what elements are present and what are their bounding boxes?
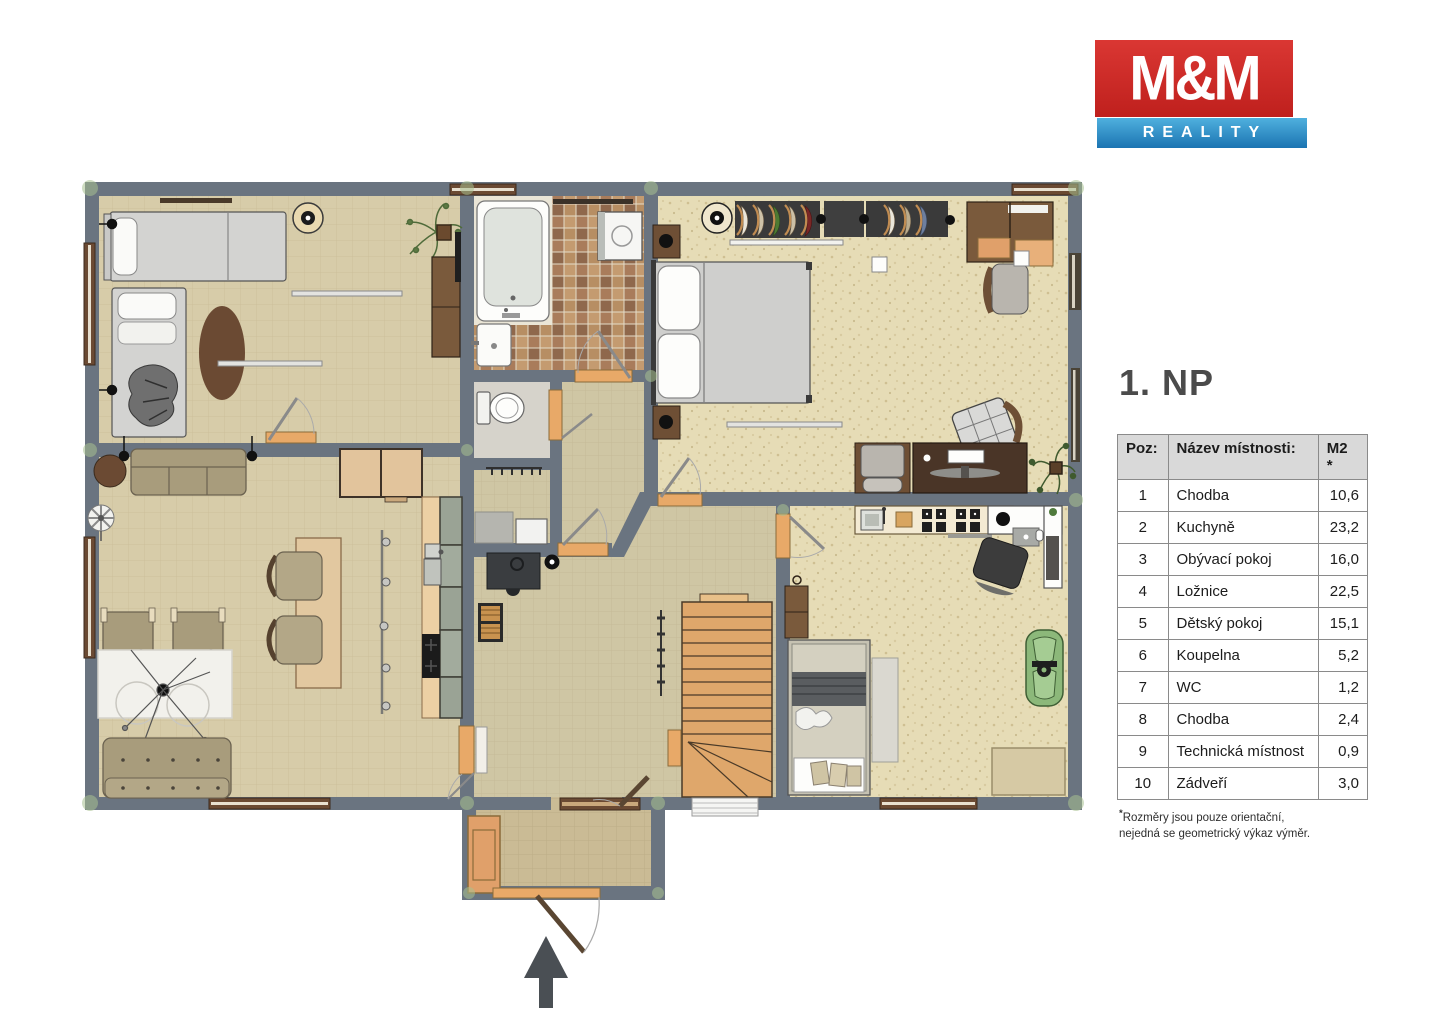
dining-chair [269,616,322,664]
table-row: 4Ložnice22,5 [1118,576,1368,608]
window-left-children [84,243,95,365]
kitchen-line [422,497,462,718]
toilet [477,392,524,424]
stove [422,634,440,678]
table-row: 2Kuchyně23,2 [1118,512,1368,544]
table-row: 5Dětský pokoj15,1 [1118,608,1368,640]
ceiling-lamp [702,203,732,233]
towel-rail [553,199,633,204]
bathtub [477,201,549,321]
legend-panel: 1. NP Poz: Název místnosti: M2 * 1Chodba… [1117,362,1369,842]
table-header-row: Poz: Název místnosti: M2 * [1118,435,1368,480]
floor-title: 1. NP [1119,362,1369,404]
mm-reality-logo: M&M REALITY [1095,40,1310,148]
bed-single-top [104,212,286,281]
doorstop-icon [545,555,560,570]
window-left-living [84,537,95,658]
table-row: 8Chodba2,4 [1118,704,1368,736]
footnote: *Rozměry jsou pouze orientační, nejedná … [1117,807,1369,842]
ceiling-lamp [293,203,323,233]
bed-single-left [112,288,186,437]
toy-car [1026,630,1063,706]
logo-blue-bar: REALITY [1097,118,1307,148]
window-right-upper [1069,253,1081,310]
table-row: 6Koupelna5,2 [1118,640,1368,672]
logo-reality-text: REALITY [1137,125,1267,141]
window-bottom-living [209,798,330,809]
window-right-lower [1071,368,1080,462]
bench [468,816,500,893]
sofa-top [131,449,246,495]
table-row: 10Zádveří3,0 [1118,768,1368,800]
col-header-poz: Poz: [1118,435,1169,480]
room-table: Poz: Název místnosti: M2 * 1Chodba10,6 2… [1117,434,1368,800]
window-top-right [1012,184,1078,195]
door-mat [692,798,758,816]
desk-dark [913,443,1027,493]
dresser [967,202,1053,266]
table-row: 1Chodba10,6 [1118,480,1368,512]
m2-label: M2 [1327,440,1359,457]
boiler [516,519,547,544]
footnote-line2: nejedná se geometrický výkaz výměr. [1119,828,1310,840]
logo-red-box: M&M [1095,40,1293,117]
floors [99,196,1068,886]
bed-double [651,260,812,405]
col-header-m2: M2 * [1318,435,1367,480]
kitchen-sink [424,544,444,585]
logo-mm-text: M&M [1129,47,1259,110]
entrance-arrow [524,936,568,1008]
rug-oval [199,306,245,400]
page: M&M REALITY 1. NP Poz: Název místnosti: … [0,0,1440,1018]
rug [992,748,1065,795]
wall-shelf [727,422,842,427]
footnote-line1: Rozměry jsou pouze orientační, [1123,812,1285,824]
window-top-bathroom [450,184,516,195]
dining-chair [269,552,322,600]
armchair [855,443,910,493]
firewood-box [478,603,503,642]
table-row: 7WC1,2 [1118,672,1368,704]
table-row: 9Technická místnost0,9 [1118,736,1368,768]
tall-cabinet [340,449,422,502]
sink [471,324,511,366]
sofa-bottom [103,738,231,798]
table-row: 3Obývací pokoj16,0 [1118,544,1368,576]
floor-register [872,257,887,272]
col-header-name: Název místnosti: [1168,435,1318,480]
window-bottom-right [880,798,977,809]
floor-mat [475,512,513,543]
washing-machine [598,212,642,260]
m2-star: * [1327,457,1359,474]
